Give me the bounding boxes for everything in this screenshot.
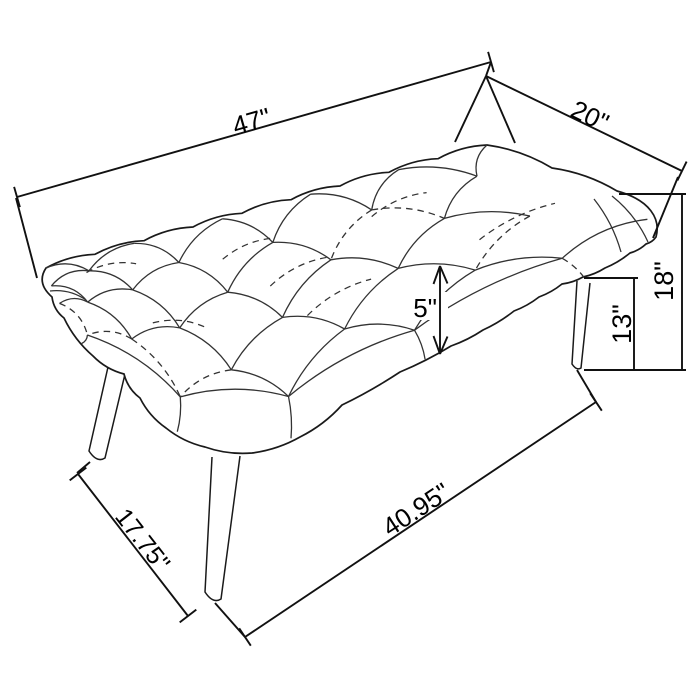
svg-text:13": 13" — [607, 304, 637, 344]
svg-text:5": 5" — [413, 293, 437, 323]
svg-text:18": 18" — [649, 261, 679, 301]
